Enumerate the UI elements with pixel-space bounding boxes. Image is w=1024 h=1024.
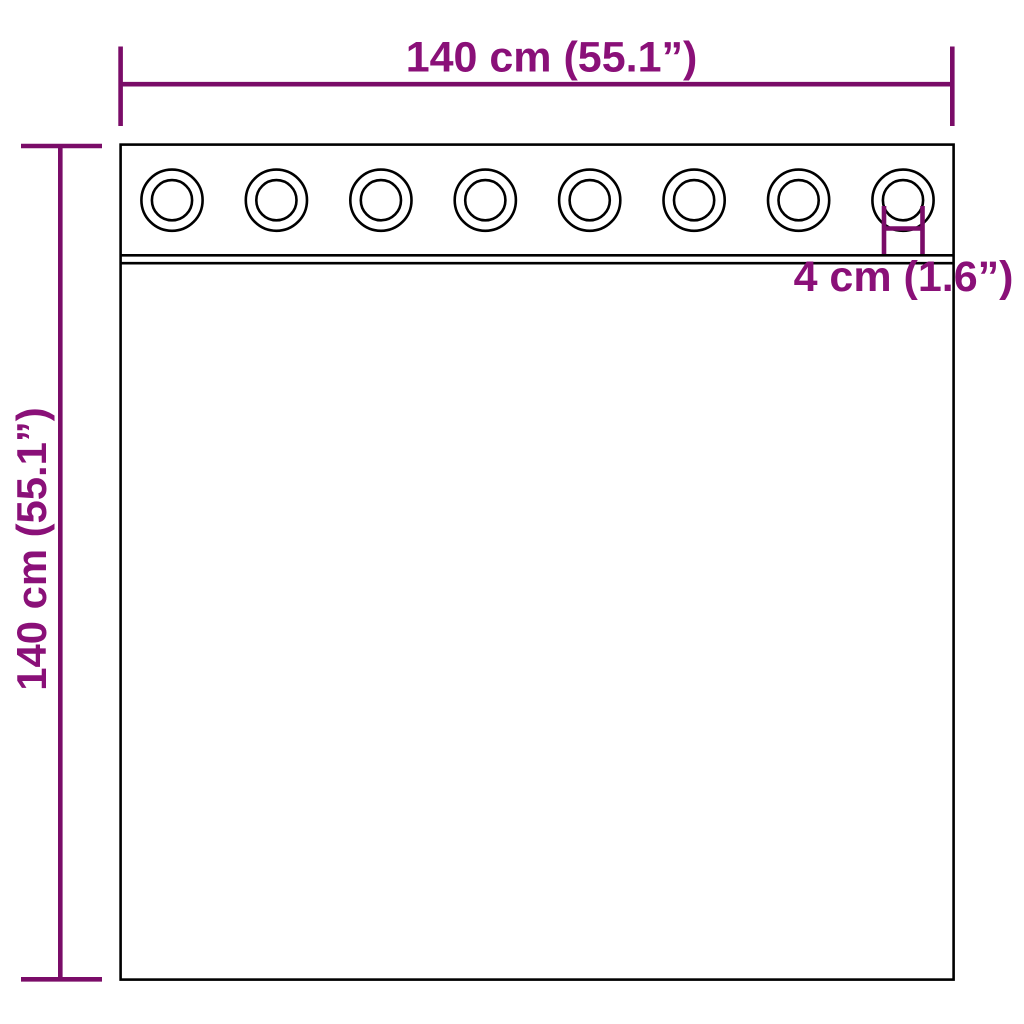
svg-text:4 cm (1.6”): 4 cm (1.6”) [794, 253, 1014, 301]
svg-text:140 cm (55.1”): 140 cm (55.1”) [8, 407, 55, 690]
svg-text:140 cm (55.1”): 140 cm (55.1”) [406, 34, 698, 82]
